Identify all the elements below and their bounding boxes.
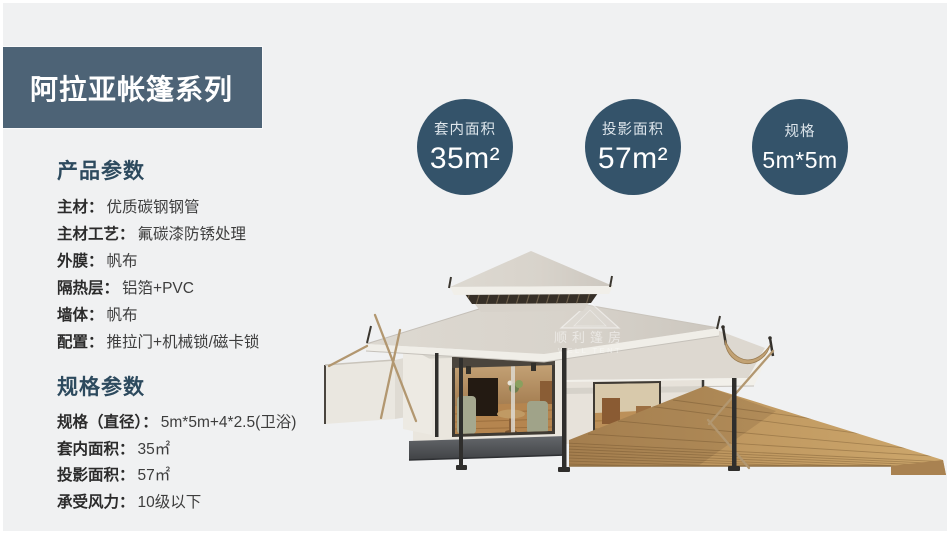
eave-tensioner-right	[717, 316, 720, 329]
tent-left-awning-flap	[403, 345, 432, 435]
param-label: 主材：	[57, 199, 104, 216]
dresser	[602, 398, 620, 424]
badge-value: 5m*5m	[762, 147, 837, 174]
param-label: 配置：	[57, 334, 104, 351]
watermark-cn-text: 顺利篷房	[554, 330, 626, 345]
param-label: 套内面积：	[57, 441, 135, 458]
param-label: 墙体：	[57, 307, 104, 324]
tent-left-panel	[325, 356, 413, 424]
param-value: 10级以下	[138, 494, 202, 511]
param-label: 主材工艺：	[57, 226, 135, 243]
badge-label: 投影面积	[602, 118, 664, 139]
param-value: 57㎡	[138, 467, 171, 484]
param-label: 外膜：	[57, 253, 104, 270]
armchair-right	[527, 401, 548, 434]
param-value: 推拉门+机械锁/磁卡锁	[107, 334, 260, 351]
eave-tensioner-left	[367, 326, 371, 343]
tent-illustration: 顺利篷房 WELL TENT	[318, 238, 950, 528]
badge-value: 35m²	[430, 142, 500, 176]
tent-cap-roof	[449, 251, 613, 312]
tent-window	[452, 354, 555, 437]
badge-label: 规格	[785, 120, 816, 141]
cabinet	[540, 381, 552, 404]
badge-projected-area: 投影面积 57m²	[585, 99, 681, 195]
param-label: 投影面积：	[57, 467, 135, 484]
param-value: 优质碳钢钢管	[107, 199, 200, 216]
watermark-en-text: WELL TENT	[558, 346, 622, 355]
param-value: 5m*5m+4*2.5(卫浴)	[161, 414, 297, 431]
param-value: 氟碳漆防锈处理	[138, 226, 247, 243]
page-background: 阿拉亚帐篷系列 产品参数 主材：优质碳钢钢管 主材工艺：氟碳漆防锈处理 外膜：帆…	[3, 3, 947, 531]
param-value: 铝箔+PVC	[122, 280, 194, 297]
param-label: 承受风力：	[57, 494, 135, 511]
badge-value: 57m²	[598, 142, 668, 176]
series-title: 阿拉亚帐篷系列	[3, 68, 233, 108]
cap-tensioner-right	[610, 276, 612, 287]
badge-inner-area: 套内面积 35m²	[417, 99, 513, 195]
cap-tensioner-left	[449, 277, 451, 288]
badge-label: 套内面积	[434, 118, 496, 139]
section-heading-product-params: 产品参数	[57, 155, 387, 185]
param-label: 规格（直径）：	[57, 414, 158, 431]
param-value: 帆布	[107, 253, 138, 270]
param-row: 主材：优质碳钢钢管	[57, 194, 387, 221]
param-value: 35㎡	[138, 441, 171, 458]
param-value: 帆布	[107, 307, 138, 324]
series-title-banner: 阿拉亚帐篷系列	[3, 47, 262, 128]
badge-size-spec: 规格 5m*5m	[752, 99, 848, 195]
param-label: 隔热层：	[57, 280, 119, 297]
